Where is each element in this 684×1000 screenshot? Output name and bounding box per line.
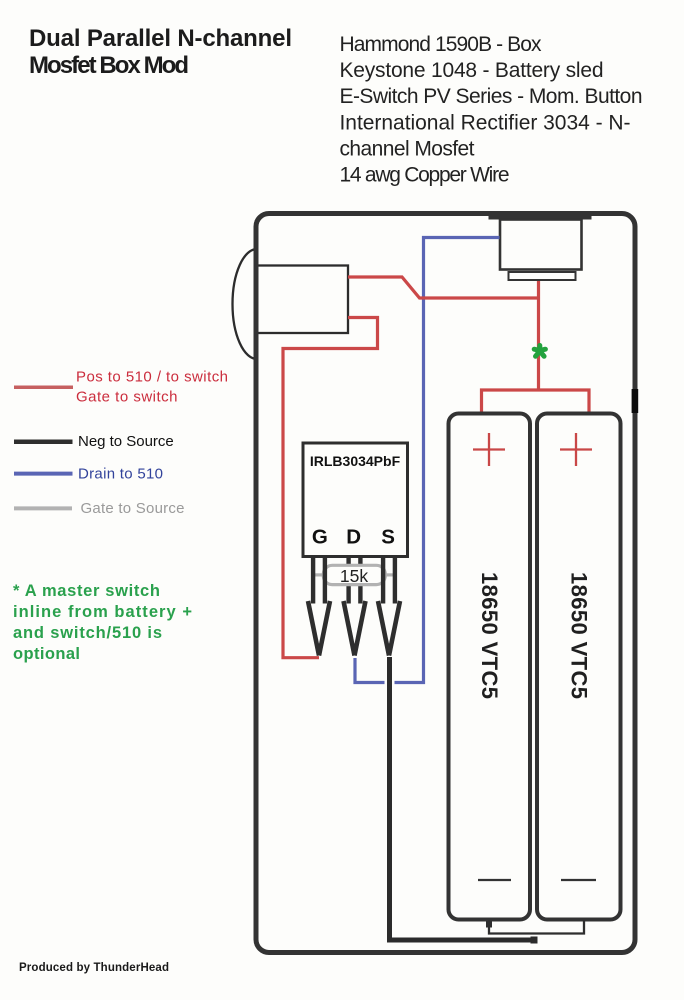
svg-text:Gate to Source: Gate to Source [81, 500, 185, 517]
svg-text:Dual Parallel N-channel: Dual Parallel N-channel [29, 25, 292, 52]
svg-text:18650 VTC5: 18650 VTC5 [477, 572, 502, 699]
svg-text:Produced by ThunderHead: Produced by ThunderHead [19, 962, 169, 974]
svg-text:18650 VTC5: 18650 VTC5 [566, 572, 591, 699]
svg-text:Neg to Source: Neg to Source [78, 433, 174, 450]
svg-text:IRLB3034PbF: IRLB3034PbF [310, 453, 401, 469]
svg-text:inline from battery +: inline from battery + [13, 603, 192, 621]
svg-text:optional: optional [13, 645, 80, 663]
svg-text:14 awg Copper Wire: 14 awg Copper Wire [340, 164, 510, 187]
svg-text:and switch/510 is: and switch/510 is [13, 624, 162, 642]
svg-text:Pos to 510 / to switch: Pos to 510 / to switch [76, 369, 228, 386]
svg-text:Keystone 1048 - Battery sled: Keystone 1048 - Battery sled [340, 59, 604, 82]
svg-text:G: G [312, 526, 328, 549]
svg-text:15k: 15k [340, 566, 368, 586]
svg-text:Gate to switch: Gate to switch [76, 389, 178, 406]
svg-text:Drain to 510: Drain to 510 [78, 466, 163, 483]
svg-text:E-Switch PV Series - Mom. Butt: E-Switch PV Series - Mom. Button [340, 85, 643, 108]
svg-text:* A master switch: * A master switch [13, 582, 160, 600]
svg-text:channel Mosfet: channel Mosfet [340, 138, 475, 161]
svg-text:International Rectifier 3034 -: International Rectifier 3034 - N- [340, 111, 631, 134]
svg-text:Hammond 1590B - Box: Hammond 1590B - Box [340, 33, 543, 56]
svg-text:Mosfet Box Mod: Mosfet Box Mod [29, 52, 189, 79]
svg-text:S: S [381, 526, 395, 549]
svg-text:D: D [346, 526, 361, 549]
